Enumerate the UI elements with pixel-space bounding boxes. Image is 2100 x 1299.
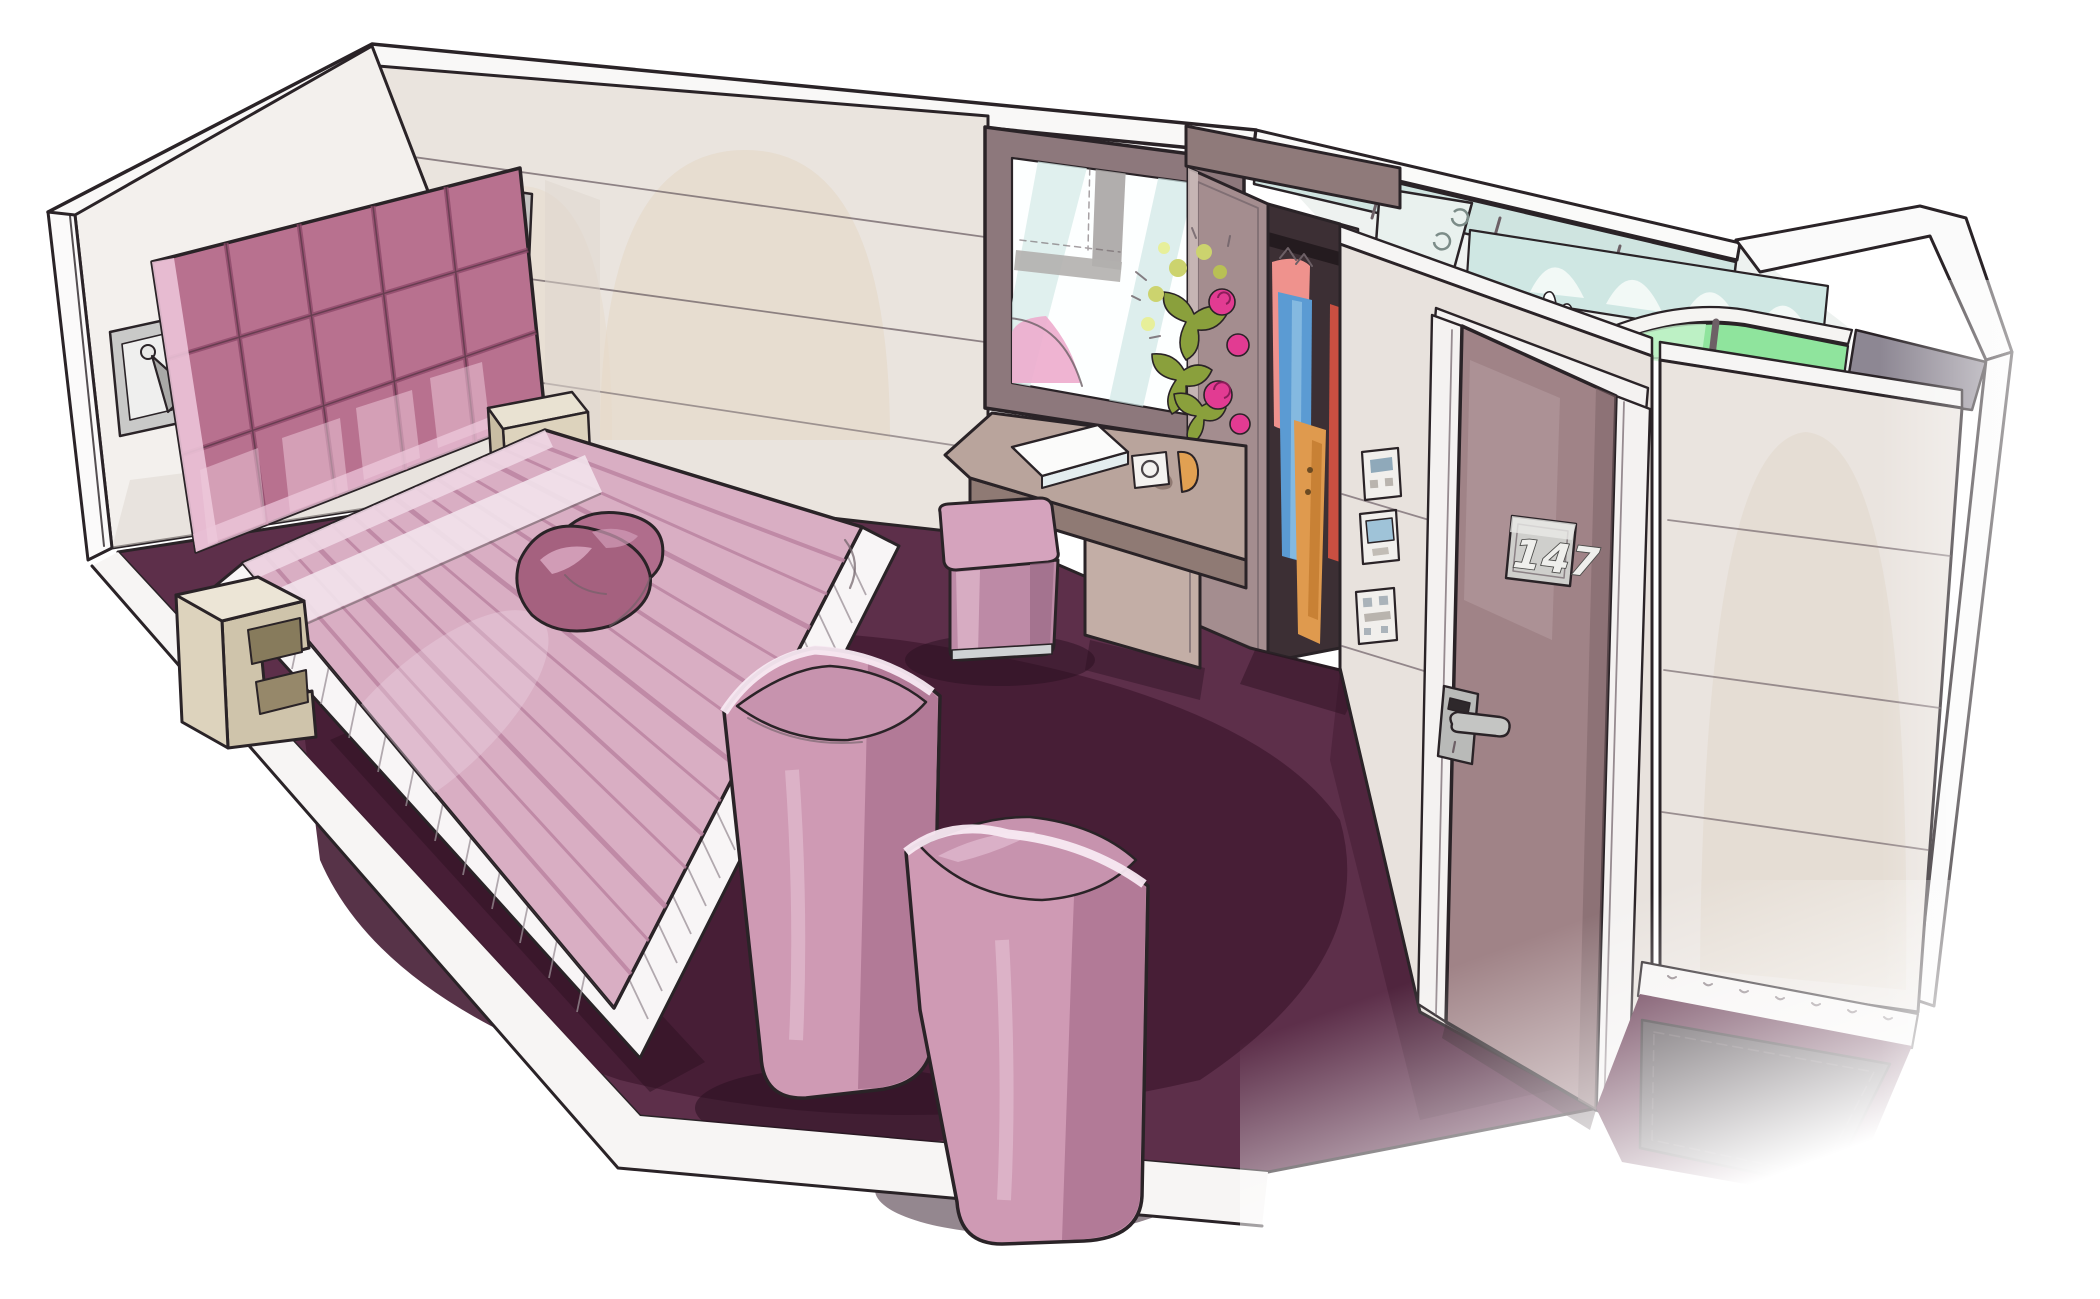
- room-sketch-canvas: 147: [0, 0, 2100, 1299]
- view-building: [1092, 162, 1126, 270]
- socket-plate: [1132, 452, 1169, 488]
- pouf-shade: [1030, 562, 1054, 650]
- thermostat-screen: [1366, 518, 1394, 543]
- shell-sheen: [792, 770, 798, 1040]
- socket-plate-face: [1132, 452, 1169, 488]
- page-fade-right: [1880, 280, 2100, 1299]
- switch-panel-3: [1356, 588, 1397, 644]
- door-wash-light: [1464, 360, 1560, 640]
- switch-panel-1: [1362, 448, 1401, 500]
- pouf: [940, 498, 1059, 660]
- hotel-room-illustration: 147: [0, 0, 2100, 1299]
- pouf-highlight: [956, 570, 980, 656]
- shell-sheen: [1002, 940, 1007, 1200]
- armchair-shade: [1062, 846, 1146, 1240]
- pouf-top: [940, 498, 1059, 570]
- switch-panel-2: [1360, 510, 1399, 564]
- desk-lamp-base: [1178, 452, 1198, 492]
- panel-face: [1362, 448, 1401, 500]
